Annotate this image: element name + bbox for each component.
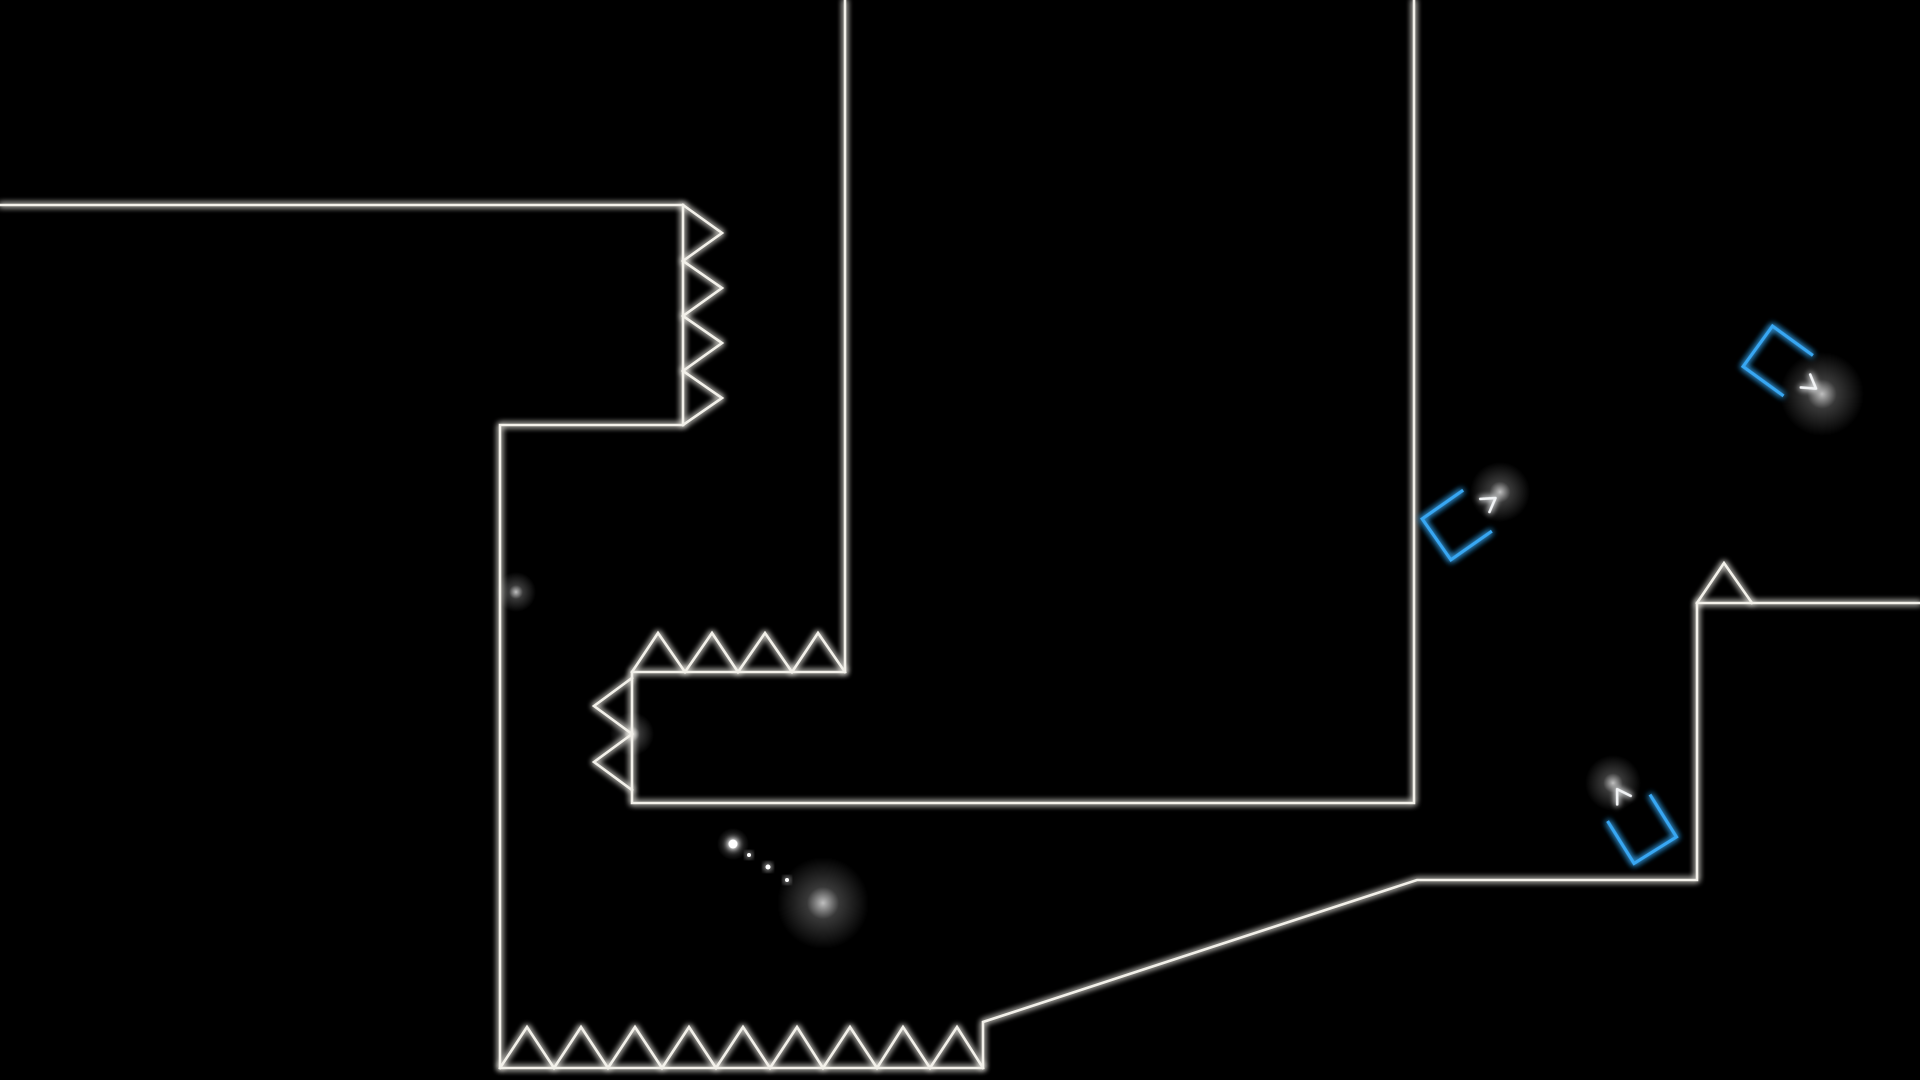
bloom-arrow-tip-top-right <box>1780 352 1864 436</box>
player-edge <box>820 899 850 931</box>
booster-mid-right-up-right <box>1422 478 1510 560</box>
player-edge <box>819 876 851 906</box>
boost-pads-layer <box>1422 326 1831 863</box>
spike-hazards-layer <box>500 205 1752 1068</box>
game-canvas[interactable] <box>0 0 1920 1080</box>
player-square <box>792 872 854 934</box>
spike-single-on-right-platform <box>1697 563 1752 603</box>
spikes-up-facing-on-tower-ledge <box>632 633 845 672</box>
bloom-player <box>777 857 869 949</box>
wall-center-tower <box>632 0 1414 803</box>
trail-dot <box>747 853 751 857</box>
booster-bottom-right-up <box>1596 776 1677 864</box>
bloom-arrow-tip-bottom <box>1585 755 1641 811</box>
player-layer <box>792 872 854 934</box>
spikes-left-facing-on-tower-side <box>594 678 632 790</box>
booster-top-right-down-right <box>1743 326 1831 409</box>
trail-dot <box>785 878 789 882</box>
game-viewport[interactable] <box>0 0 1920 1080</box>
spikes-up-facing-on-bottom-floor <box>500 1027 983 1068</box>
bloom-arrow-tip-mid <box>1470 462 1530 522</box>
wall-upper-left-floor-and-right-platform <box>0 205 1920 1068</box>
level-walls-layer <box>0 0 1920 1068</box>
player-edge <box>796 875 826 907</box>
spikes-right-facing-on-upper-ledge <box>683 205 722 425</box>
player-trail-layer <box>726 837 789 882</box>
bloom-ledge-corner <box>496 572 536 612</box>
trail-dot <box>766 865 771 870</box>
player-edge <box>795 900 827 930</box>
